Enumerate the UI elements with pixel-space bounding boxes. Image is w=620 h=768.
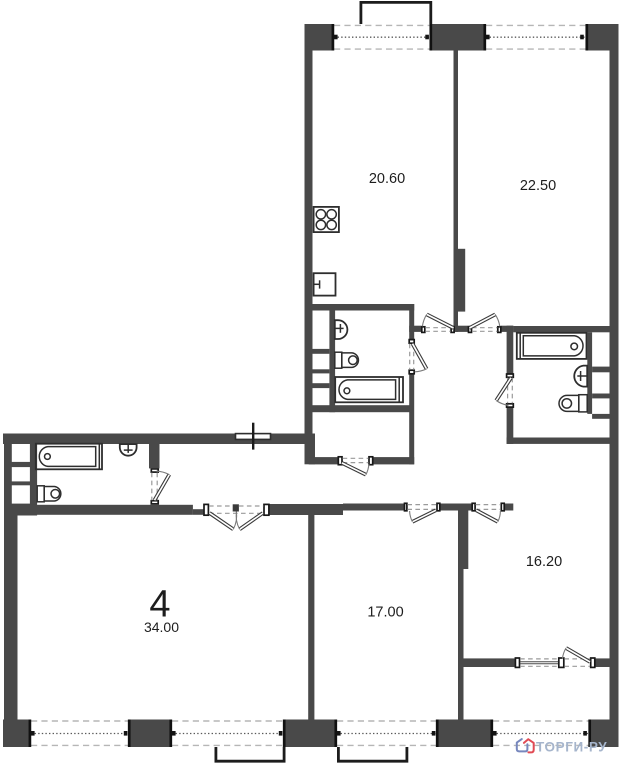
svg-text:ТОРГИ-РУ: ТОРГИ-РУ (536, 740, 607, 755)
svg-text:20.60: 20.60 (369, 171, 405, 187)
svg-text:22.50: 22.50 (520, 178, 556, 194)
svg-text:17.00: 17.00 (367, 605, 403, 621)
svg-text:34.00: 34.00 (144, 619, 179, 635)
svg-text:16.20: 16.20 (526, 554, 562, 570)
